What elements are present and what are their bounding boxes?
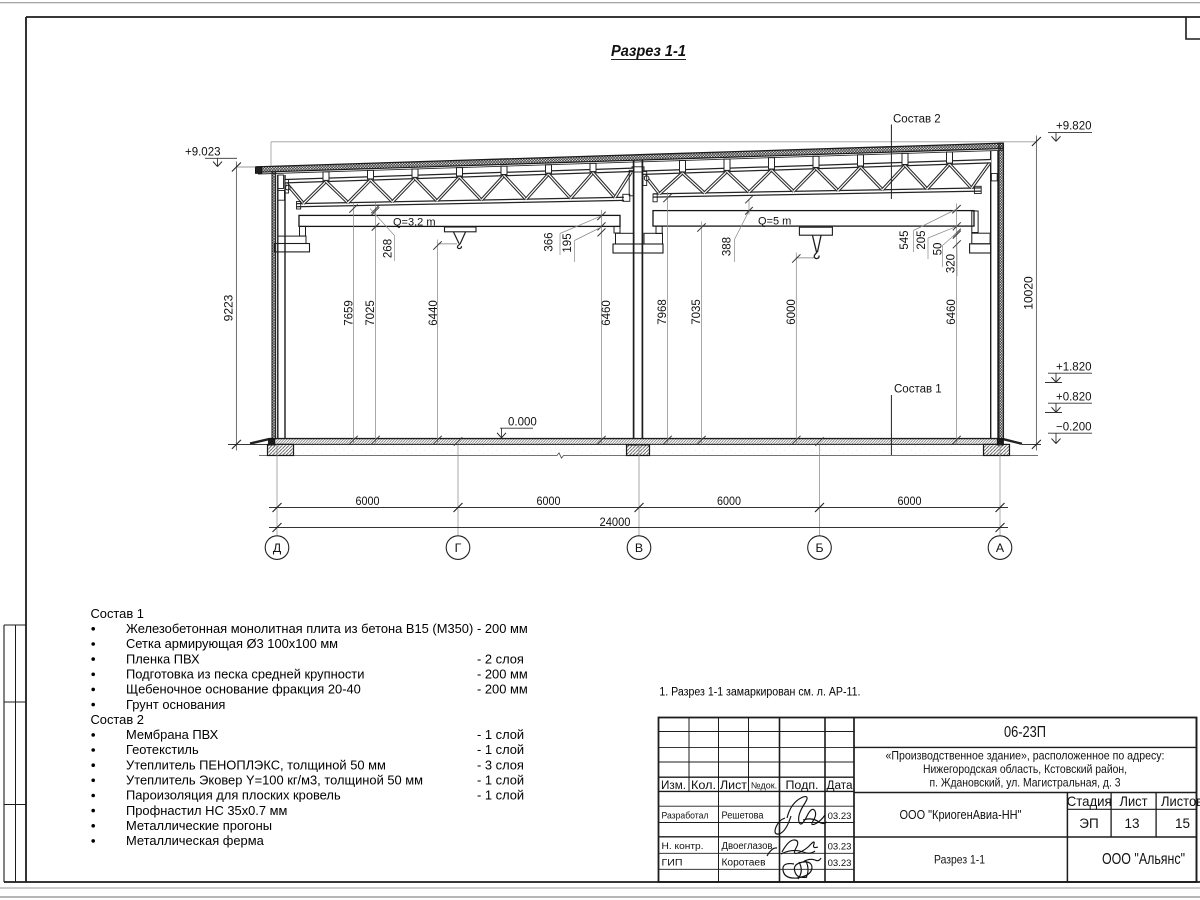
svg-text:03.23: 03.23 [828, 842, 852, 853]
svg-text:ООО "КриогенАвиа-НН": ООО "КриогенАвиа-НН" [900, 808, 1022, 822]
svg-text:Пароизоляция для плоских крове: Пароизоляция для плоских кровель [126, 788, 341, 803]
svg-text:Б: Б [815, 541, 823, 555]
svg-text:- 1 слой: - 1 слой [477, 773, 524, 788]
svg-text:Железобетонная монолитная плит: Железобетонная монолитная плита из бетон… [126, 621, 473, 636]
svg-text:Щебеночное основание фракция 2: Щебеночное основание фракция 20-40 [126, 682, 361, 697]
svg-text:п. Ждановский, ул. Магистральн: п. Ждановский, ул. Магистральная, д. 3 [930, 776, 1121, 790]
svg-text:- 2 слоя: - 2 слоя [477, 651, 524, 666]
svg-text:1. Разрез 1-1 замаркирован см.: 1. Разрез 1-1 замаркирован см. л. АР-11. [659, 686, 860, 698]
svg-text:Состав 2: Состав 2 [893, 114, 941, 126]
svg-text:6000: 6000 [356, 494, 380, 508]
svg-text:03.23: 03.23 [828, 858, 852, 869]
svg-text:Листов: Листов [1161, 794, 1200, 809]
svg-text:Состав 1: Состав 1 [894, 384, 942, 396]
svg-text:Г: Г [455, 541, 462, 555]
svg-text:Кол.: Кол. [691, 780, 716, 792]
svg-text:6460: 6460 [601, 300, 613, 326]
svg-text:9223: 9223 [222, 294, 236, 321]
svg-text:13: 13 [1124, 816, 1139, 831]
svg-text:Лист: Лист [720, 780, 748, 792]
svg-text:545: 545 [899, 230, 911, 249]
svg-text:+9.023: +9.023 [185, 147, 221, 159]
svg-text:Сетка армирующая Ø3 100х100 мм: Сетка армирующая Ø3 100х100 мм [126, 636, 338, 651]
svg-text:- 200 мм: - 200 мм [477, 682, 528, 697]
svg-text:Стадия: Стадия [1067, 794, 1112, 809]
svg-text:50: 50 [933, 243, 945, 256]
svg-text:Изм.: Изм. [661, 780, 686, 792]
svg-text:7035: 7035 [691, 299, 703, 325]
svg-text:Мембрана ПВХ: Мембрана ПВХ [126, 727, 219, 742]
svg-text:Q=5 m: Q=5 m [758, 216, 791, 228]
svg-text:ГИП: ГИП [662, 858, 683, 869]
svg-text:Дата: Дата [827, 780, 854, 792]
svg-text:Q=3,2 m: Q=3,2 m [393, 217, 436, 229]
svg-text:Металлическая ферма: Металлическая ферма [126, 833, 265, 848]
svg-text:ООО "Альянс": ООО "Альянс" [1102, 851, 1185, 868]
svg-text:6440: 6440 [428, 300, 440, 326]
svg-text:6000: 6000 [898, 494, 922, 508]
svg-text:Состав 1: Состав 1 [91, 606, 144, 621]
svg-text:- 1 слой: - 1 слой [477, 742, 524, 757]
svg-text:Коротаев: Коротаев [722, 858, 766, 869]
svg-text:15: 15 [1175, 816, 1190, 831]
svg-text:7659: 7659 [344, 300, 356, 326]
svg-text:06-23П: 06-23П [1004, 724, 1046, 741]
svg-text:Разработал: Разработал [662, 811, 709, 821]
svg-text:6460: 6460 [946, 299, 958, 325]
svg-text:- 3 слоя: - 3 слоя [477, 757, 524, 772]
svg-text:№док.: №док. [751, 781, 777, 791]
svg-text:268: 268 [383, 239, 395, 258]
svg-text:Состав 2: Состав 2 [91, 712, 144, 727]
svg-text:Металлические прогоны: Металлические прогоны [126, 818, 272, 833]
svg-text:+1.820: +1.820 [1056, 362, 1092, 374]
svg-text:Двоеглазов: Двоеглазов [722, 841, 773, 852]
svg-text:6000: 6000 [717, 494, 741, 508]
svg-text:Разрез 1-1: Разрез 1-1 [934, 854, 985, 867]
svg-text:Д: Д [273, 541, 282, 555]
svg-text:320: 320 [946, 254, 958, 273]
svg-text:Н. контр.: Н. контр. [662, 841, 704, 852]
svg-text:388: 388 [722, 237, 734, 256]
svg-text:- 1 слой: - 1 слой [477, 727, 524, 742]
svg-text:205: 205 [916, 230, 928, 249]
svg-text:0.000: 0.000 [508, 417, 537, 429]
svg-text:- 200 мм: - 200 мм [477, 621, 528, 636]
svg-text:В: В [635, 541, 643, 555]
svg-text:Решетова: Решетова [722, 811, 764, 822]
svg-text:+9.820: +9.820 [1056, 121, 1092, 133]
svg-text:Подп.: Подп. [786, 780, 819, 792]
svg-text:А: А [996, 541, 1005, 555]
svg-text:Нижегородская область, Кстовск: Нижегородская область, Кстовский район, [923, 762, 1127, 776]
svg-text:+0.820: +0.820 [1056, 392, 1092, 404]
svg-text:Подготовка из песка средней кр: Подготовка из песка средней крупности [126, 667, 364, 682]
svg-text:10020: 10020 [1022, 276, 1036, 310]
svg-text:«Производственное здание», рас: «Производственное здание», расположенное… [886, 749, 1165, 763]
svg-text:Геотекстиль: Геотекстиль [126, 742, 199, 757]
svg-text:- 200 мм: - 200 мм [477, 667, 528, 682]
svg-text:03.23: 03.23 [828, 811, 852, 822]
svg-text:6000: 6000 [786, 299, 798, 325]
svg-text:Профнастил НС 35х0.7 мм: Профнастил НС 35х0.7 мм [126, 803, 287, 818]
svg-text:366: 366 [544, 232, 556, 251]
svg-text:Разрез 1-1: Разрез 1-1 [611, 43, 686, 60]
svg-text:- 1 слой: - 1 слой [477, 788, 524, 803]
svg-text:24000: 24000 [600, 515, 631, 529]
svg-text:Грунт основания: Грунт основания [126, 697, 225, 712]
svg-text:−0.200: −0.200 [1056, 422, 1092, 434]
svg-text:Лист: Лист [1120, 794, 1149, 809]
svg-text:Утеплитель Эковер Y=100 кг/м3,: Утеплитель Эковер Y=100 кг/м3, толщиной … [126, 773, 423, 788]
svg-text:7968: 7968 [657, 299, 669, 325]
svg-text:Утеплитель ПЕНОПЛЭКС, толщиной: Утеплитель ПЕНОПЛЭКС, толщиной 50 мм [126, 757, 386, 772]
svg-text:ЭП: ЭП [1079, 816, 1098, 831]
svg-text:Пленка ПВХ: Пленка ПВХ [126, 651, 200, 666]
svg-text:195: 195 [562, 233, 574, 252]
svg-text:6000: 6000 [537, 494, 561, 508]
svg-text:7025: 7025 [365, 300, 377, 326]
